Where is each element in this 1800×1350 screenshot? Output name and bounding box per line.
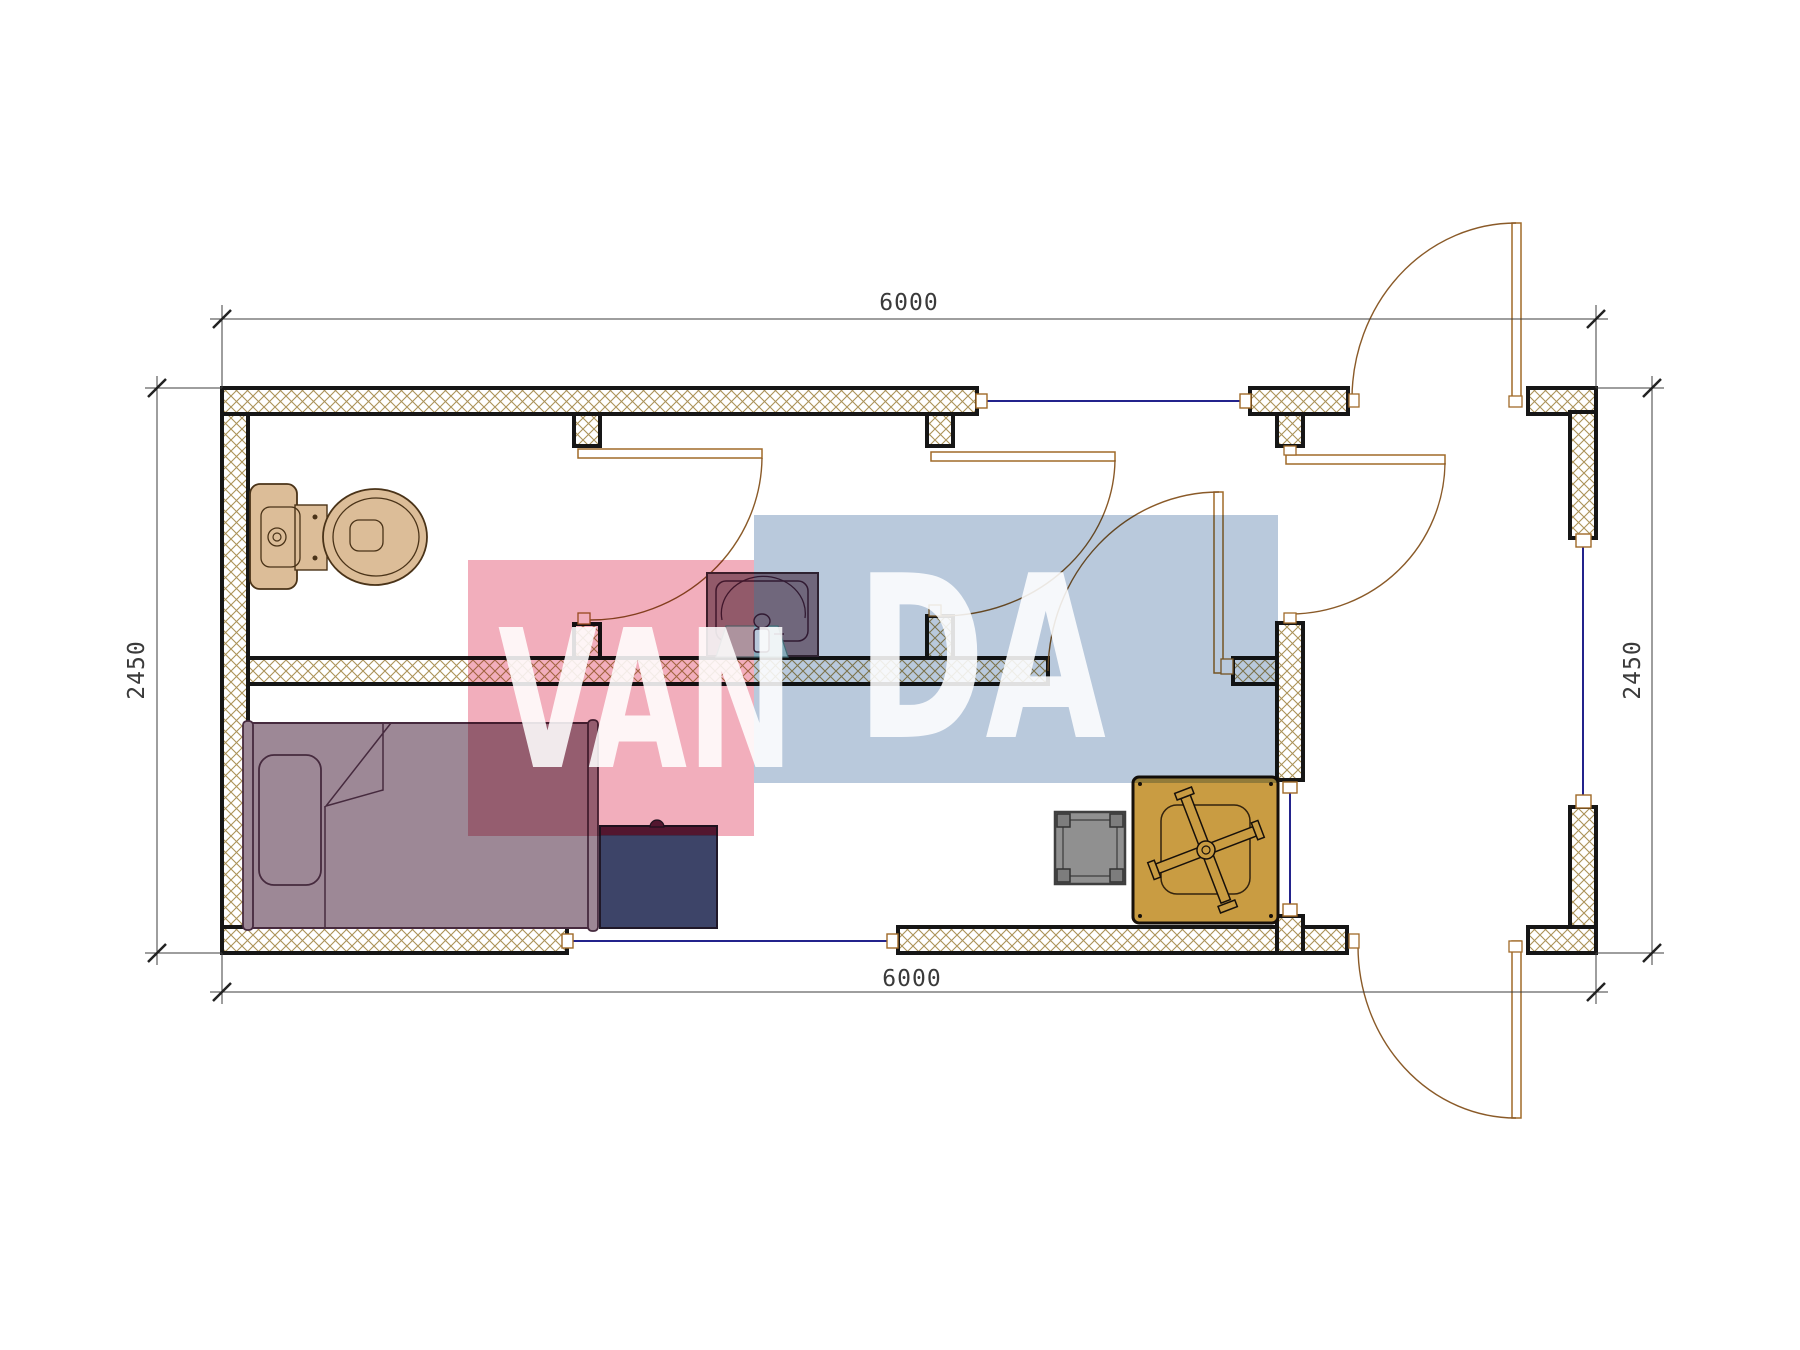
wall-right-lower	[1570, 807, 1596, 927]
floor-plan-drawing: VAN DA 6000 6000 2450 2450	[0, 0, 1800, 1350]
table-symbol	[1128, 769, 1284, 931]
door-right-room-leaf	[1286, 455, 1445, 464]
door-wc-leaf	[578, 449, 762, 458]
door-hall-leaf	[931, 452, 1115, 461]
stool-symbol	[1055, 812, 1125, 884]
floor-plan-canvas: VAN DA 6000 6000 2450 2450	[0, 0, 1800, 1350]
door-entrance-bottom-leaf	[1512, 941, 1521, 1118]
door-entrance-top	[1349, 223, 1522, 407]
wall-bottom-a	[222, 927, 567, 953]
wall-right-upper	[1570, 412, 1596, 538]
door-right-room	[1284, 446, 1445, 623]
wall-stub-wc-top	[574, 414, 600, 446]
door-right-room-arc	[1291, 463, 1445, 614]
door-entrance-top-leaf	[1512, 223, 1521, 399]
dimension-right-label: 2450	[1620, 640, 1646, 699]
door-entrance-bottom	[1349, 934, 1522, 1118]
door-entrance-top-arc	[1352, 223, 1516, 399]
desk-symbol	[600, 820, 717, 928]
watermark-text-da: DA	[856, 528, 1106, 791]
wall-top-a	[222, 388, 977, 414]
wall-partition-right-upper	[1277, 623, 1303, 780]
dimension-bottom-label: 6000	[882, 966, 941, 992]
wall-stub-right-top	[1277, 414, 1303, 446]
watermark-text-van: VAN	[498, 590, 794, 813]
door-entrance-bottom-arc	[1358, 946, 1516, 1118]
dimension-top-label: 6000	[879, 290, 938, 316]
toilet-symbol	[250, 484, 427, 589]
bed-pillow	[259, 755, 321, 885]
wall-stub-mid-top	[927, 414, 953, 446]
wall-bottom-right-h	[1528, 927, 1596, 953]
dimension-left-label: 2450	[124, 640, 150, 699]
wall-partition-right-lower	[1277, 916, 1303, 953]
wall-top-b	[1250, 388, 1348, 414]
